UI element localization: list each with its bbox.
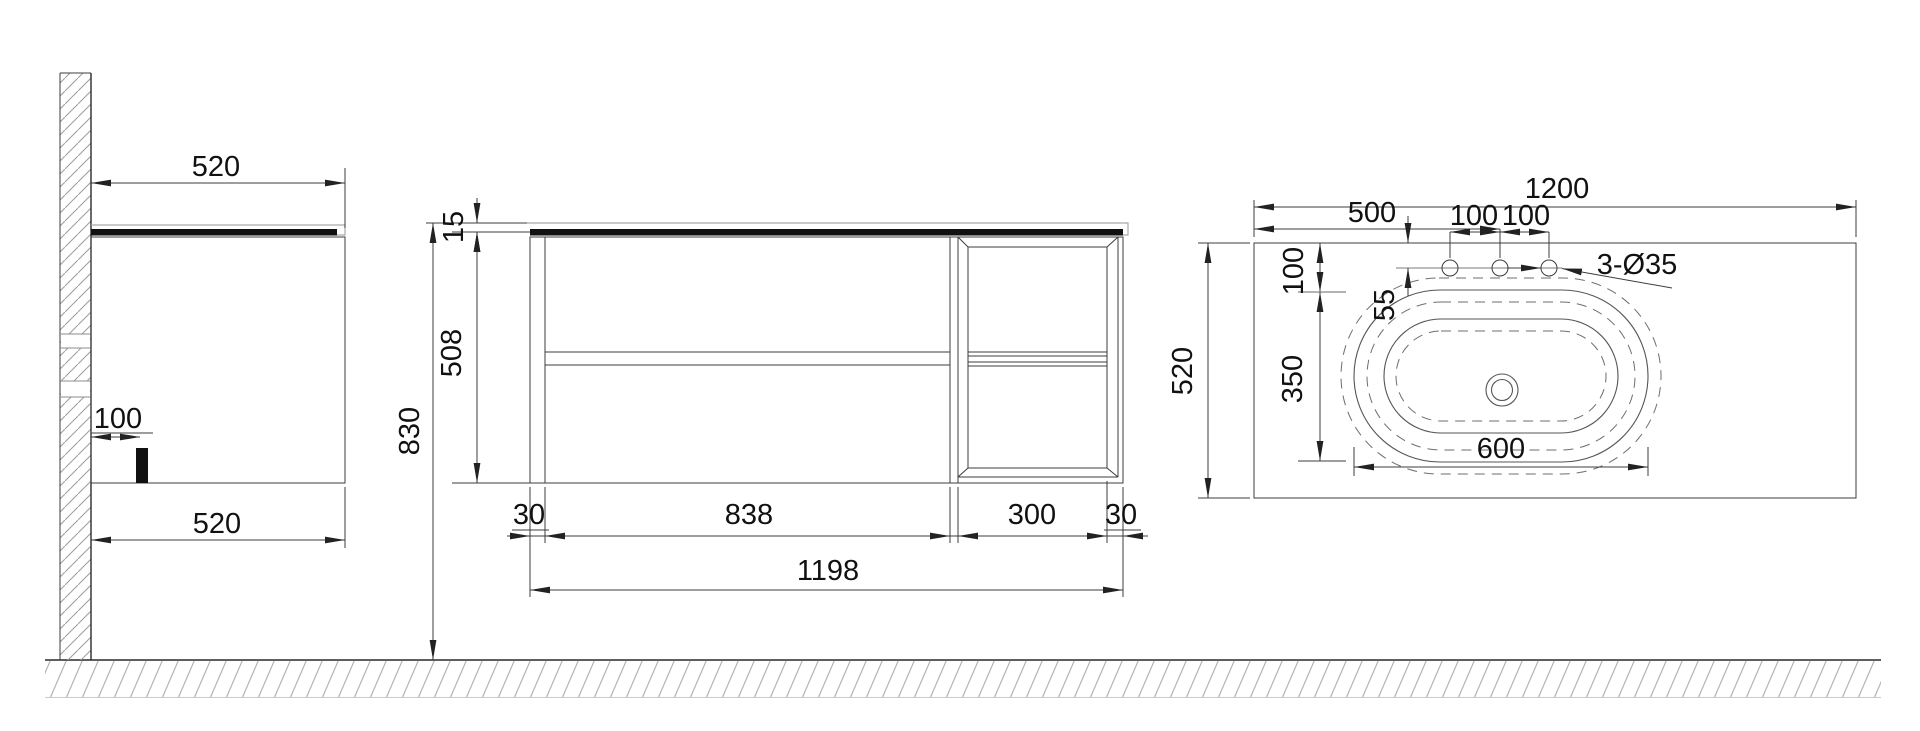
note-label-faucet-holes: 3-Ø35 bbox=[1597, 249, 1678, 281]
drawing-canvas: 520 100 520 bbox=[0, 0, 1920, 731]
dim-label-basin-width: 600 bbox=[1477, 433, 1525, 465]
drain-inner-circle bbox=[1492, 380, 1513, 401]
miter-line bbox=[1107, 468, 1118, 477]
dim-label-basin-depth: 350 bbox=[1277, 355, 1309, 403]
wall-hatch bbox=[60, 73, 91, 660]
miter-line bbox=[1107, 237, 1118, 247]
dim-side-bottom-width: 520 bbox=[91, 487, 345, 548]
dim-overall-height: 830 bbox=[394, 223, 433, 660]
basin-inner-rim bbox=[1384, 319, 1618, 433]
dim-side-top-width: 520 bbox=[91, 151, 345, 228]
dim-label-cabinet-width: 1198 bbox=[797, 555, 859, 587]
dim-label-counter-depth: 520 bbox=[1167, 347, 1199, 395]
dim-label-overall-height: 830 bbox=[394, 407, 426, 455]
dim-label-left-gable: 30 bbox=[513, 499, 545, 531]
dim-side-cleat-offset: 100 bbox=[91, 403, 153, 437]
floor-hatch bbox=[45, 661, 1881, 697]
dim-label-faucet-center: 500 bbox=[1348, 197, 1396, 229]
dim-label-hole-pitch-left: 100 bbox=[1450, 200, 1498, 232]
drain-outer-circle bbox=[1486, 374, 1518, 406]
dim-basin-from-back: 100 bbox=[1278, 243, 1346, 295]
dim-label-cabinet-height: 508 bbox=[436, 329, 468, 377]
dim-cabinet-height: 508 bbox=[436, 232, 530, 483]
technical-drawing-svg: 520 100 520 bbox=[0, 0, 1920, 731]
dim-label-holes-from-back: 55 bbox=[1369, 289, 1401, 321]
dim-counter-thickness: 15 bbox=[426, 198, 530, 257]
dim-row-bays: 30 838 300 30 bbox=[507, 499, 1148, 536]
side-view: 520 100 520 bbox=[91, 151, 345, 548]
basin-dashed-outline bbox=[1367, 302, 1635, 450]
dim-label-right-gable: 30 bbox=[1105, 499, 1137, 531]
dim-label-counter-thickness: 15 bbox=[438, 211, 470, 243]
dim-label-drawer-bay-width: 838 bbox=[725, 499, 773, 531]
floor-section bbox=[45, 660, 1881, 698]
countertop-plan bbox=[1254, 243, 1856, 498]
basin-dashed-outline bbox=[1396, 331, 1606, 421]
dim-label-side-top-width: 520 bbox=[192, 151, 240, 183]
front-view: 15 508 830 bbox=[394, 198, 1148, 660]
dim-label-side-cleat-offset: 100 bbox=[94, 403, 142, 435]
shelf-inner-frame bbox=[968, 247, 1107, 468]
top-view: 1200 500 100 100 55 3-Ø35 bbox=[1167, 173, 1856, 498]
miter-line bbox=[958, 237, 968, 247]
dim-counter-depth: 520 bbox=[1167, 243, 1250, 498]
dim-label-side-bottom-width: 520 bbox=[193, 508, 241, 540]
side-mounting-cleat bbox=[136, 448, 148, 483]
wall-joint-gap bbox=[61, 334, 90, 348]
open-shelf-bay bbox=[958, 237, 1118, 477]
dim-label-basin-from-back: 100 bbox=[1278, 247, 1310, 295]
dim-basin-width: 600 bbox=[1354, 433, 1648, 476]
dim-label-hole-pitch-right: 100 bbox=[1502, 200, 1550, 232]
dim-holes-from-back: 55 bbox=[1369, 216, 1408, 321]
side-counter-slab bbox=[91, 229, 337, 236]
wall-joint-gap bbox=[61, 381, 90, 397]
side-cabinet-body bbox=[91, 237, 345, 483]
dim-basin-depth: 350 bbox=[1277, 292, 1346, 461]
front-counter-slab bbox=[530, 229, 1123, 236]
dim-cabinet-width: 1198 bbox=[530, 555, 1123, 590]
front-cabinet-body bbox=[530, 237, 1123, 483]
dim-counter-width: 1200 bbox=[1254, 173, 1856, 237]
miter-line bbox=[958, 468, 968, 477]
dim-label-shelf-bay-width: 300 bbox=[1008, 499, 1056, 531]
wall-section bbox=[60, 73, 91, 660]
